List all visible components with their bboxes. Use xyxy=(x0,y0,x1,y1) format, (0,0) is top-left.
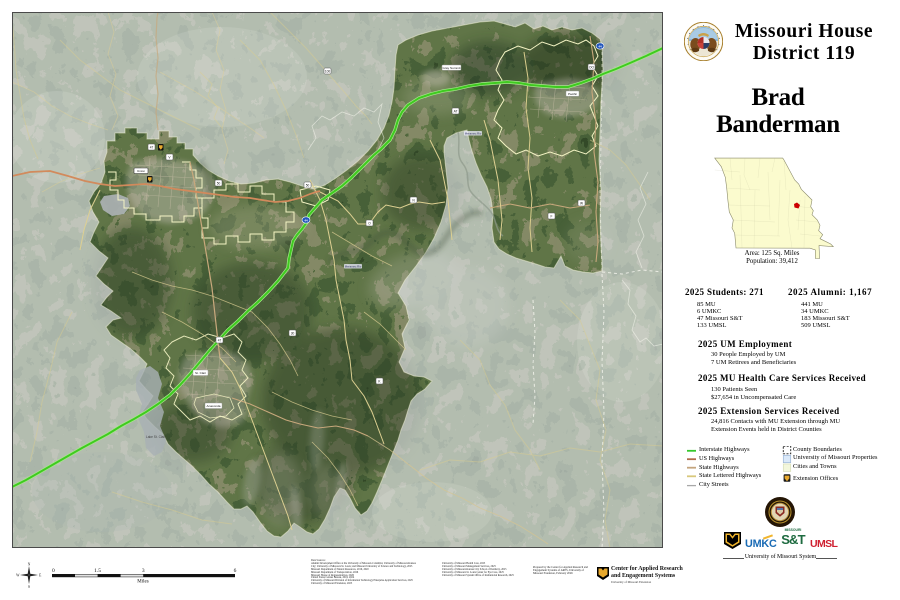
svg-text:6: 6 xyxy=(234,568,237,574)
svg-text:Miles: Miles xyxy=(137,580,148,585)
svg-text:W: W xyxy=(16,573,20,577)
svg-text:S: S xyxy=(28,585,30,588)
svg-text:0: 0 xyxy=(52,568,55,574)
svg-text:3: 3 xyxy=(142,568,145,574)
svg-text:N: N xyxy=(28,562,31,566)
svg-text:E: E xyxy=(39,573,42,577)
svg-text:1.5: 1.5 xyxy=(94,568,101,574)
